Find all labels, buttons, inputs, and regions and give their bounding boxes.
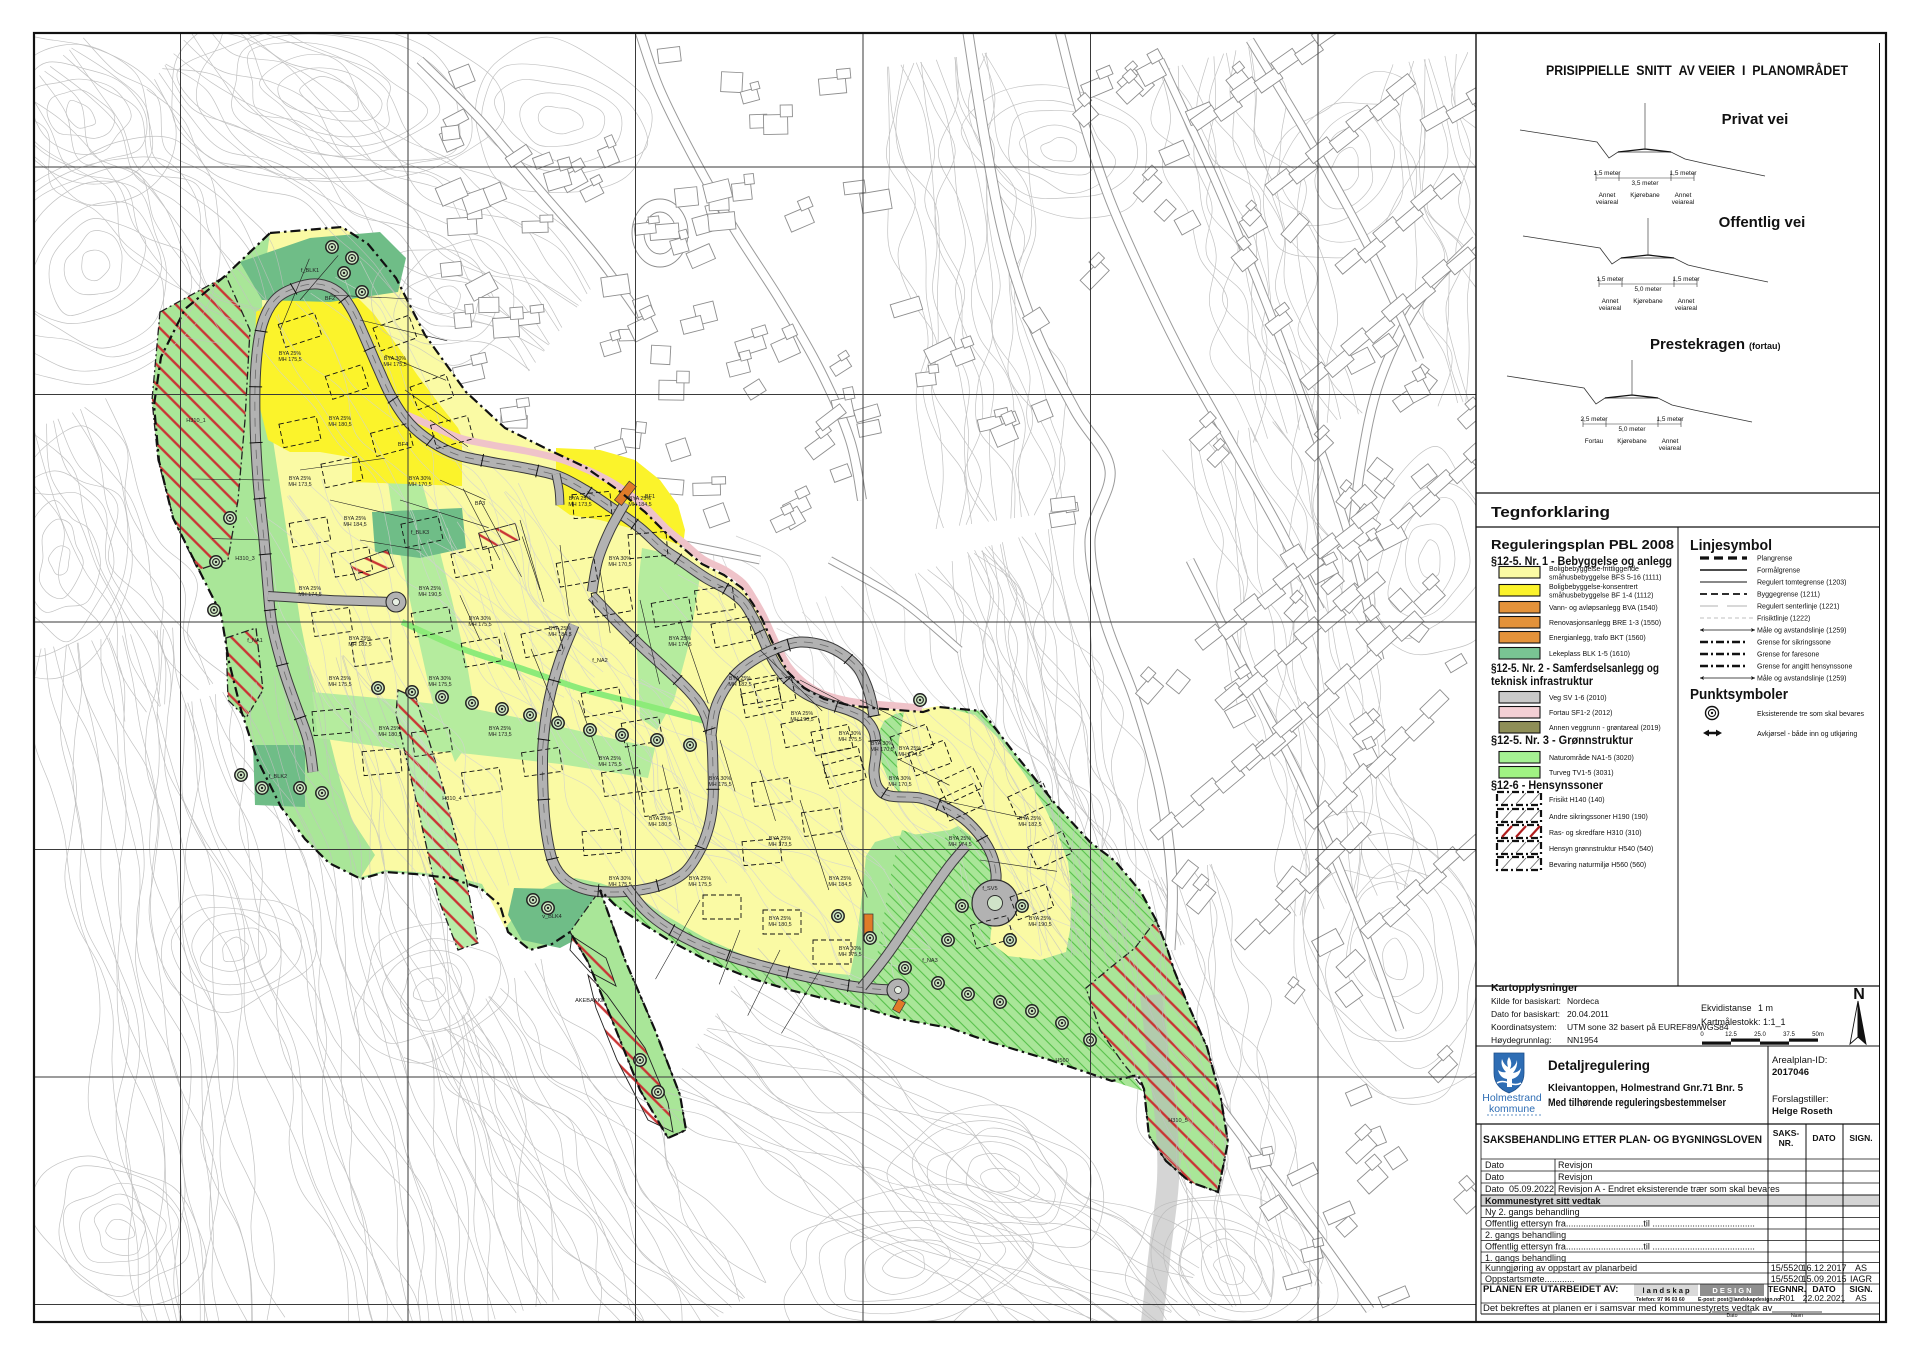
svg-text:BF3: BF3 <box>475 501 485 507</box>
svg-text:§12-5. Nr. 2 - Samferdselsanle: §12-5. Nr. 2 - Samferdselsanlegg og <box>1491 663 1659 675</box>
svg-text:Offentlig ettersyn fra........: Offentlig ettersyn fra..................… <box>1485 1242 1755 1252</box>
svg-text:50m: 50m <box>1812 1032 1824 1038</box>
svg-text:Tegnforklaring: Tegnforklaring <box>1491 504 1610 521</box>
svg-text:MH 170,5: MH 170,5 <box>408 482 431 488</box>
svg-text:Kilde for basiskart:: Kilde for basiskart: <box>1491 996 1561 1006</box>
svg-text:Renovasjonsanlegg BRE 1-3 (155: Renovasjonsanlegg BRE 1-3 (1550) <box>1549 620 1661 627</box>
svg-text:MH 173,5: MH 173,5 <box>768 842 791 848</box>
svg-text:småhusbebyggelse BFS 5-16 (111: småhusbebyggelse BFS 5-16 (1111) <box>1549 574 1661 582</box>
svg-text:Ny 2. gangs behandling: Ny 2. gangs behandling <box>1485 1207 1580 1217</box>
svg-text:f_NA1: f_NA1 <box>247 638 263 644</box>
svg-text:Ekvidistanse: Ekvidistanse <box>1701 1003 1752 1013</box>
svg-text:Kartmålestokk: 1:1_1: Kartmålestokk: 1:1_1 <box>1701 1017 1786 1027</box>
svg-text:Dato: Dato <box>1485 1160 1504 1170</box>
svg-text:veiareal: veiareal <box>1672 199 1694 206</box>
svg-text:Formålgrense: Formålgrense <box>1757 567 1800 575</box>
svg-text:22.02.2021: 22.02.2021 <box>1803 1293 1846 1303</box>
svg-text:kommune: kommune <box>1489 1103 1535 1115</box>
svg-text:MH 175,5: MH 175,5 <box>608 882 631 888</box>
svg-text:l a n d s k a p: l a n d s k a p <box>1642 1286 1690 1295</box>
svg-text:Dato: Dato <box>1485 1172 1504 1182</box>
svg-text:Avkjørsel - både inn og utkjør: Avkjørsel - både inn og utkjøring <box>1757 730 1857 738</box>
svg-text:veiareal: veiareal <box>1596 199 1618 206</box>
svg-text:BF2: BF2 <box>325 296 335 302</box>
svg-text:16.12.2017: 16.12.2017 <box>1801 1263 1846 1273</box>
svg-text:Annet: Annet <box>1678 298 1695 305</box>
svg-text:Dato 05.09.2022: Dato 05.09.2022 <box>1485 1184 1554 1194</box>
svg-text:Annet: Annet <box>1675 192 1692 199</box>
svg-text:MH 180,5: MH 180,5 <box>648 822 671 828</box>
svg-text:Punktsymboler: Punktsymboler <box>1690 687 1788 703</box>
svg-text:f_BLK3: f_BLK3 <box>411 530 429 536</box>
svg-text:v_BLK4: v_BLK4 <box>542 914 562 920</box>
svg-text:Kjørebane: Kjørebane <box>1630 192 1660 199</box>
svg-text:2. gangs behandling: 2. gangs behandling <box>1485 1230 1566 1240</box>
svg-text:Kunngjøring av oppstart av pla: Kunngjøring av oppstart av planarbeid <box>1485 1263 1637 1273</box>
svg-text:Annet: Annet <box>1662 438 1679 445</box>
svg-text:MH 184,5: MH 184,5 <box>343 522 366 528</box>
svg-text:SAKSBEHANDLING ETTER PLAN- OG: SAKSBEHANDLING ETTER PLAN- OG BYGNINGSLO… <box>1483 1134 1762 1146</box>
svg-text:SAKS-: SAKS- <box>1773 1128 1800 1138</box>
svg-text:MH 174,5: MH 174,5 <box>898 752 921 758</box>
svg-text:MH 175,5: MH 175,5 <box>838 952 861 958</box>
svg-text:MH 190,5: MH 190,5 <box>418 592 441 598</box>
svg-text:Revisjon: Revisjon <box>1558 1172 1593 1182</box>
svg-text:MH 174,5: MH 174,5 <box>668 642 691 648</box>
svg-text:Frisiktlinje (1222): Frisiktlinje (1222) <box>1757 616 1810 623</box>
svg-text:H310_1: H310_1 <box>186 418 206 424</box>
svg-text:1,5 meter: 1,5 meter <box>1594 170 1622 177</box>
svg-text:MH 173,5: MH 173,5 <box>488 732 511 738</box>
svg-text:MH 174,5: MH 174,5 <box>298 592 321 598</box>
svg-text:MH 190,5: MH 190,5 <box>790 717 813 723</box>
svg-text:småhusbebyggelse BF 1-4 (1112): småhusbebyggelse BF 1-4 (1112) <box>1549 592 1653 600</box>
svg-text:MH 175,5: MH 175,5 <box>838 737 861 743</box>
svg-text:D E S I G N: D E S I G N <box>1712 1286 1751 1295</box>
svg-text:2017046: 2017046 <box>1772 1067 1809 1078</box>
svg-text:Arealplan-ID:: Arealplan-ID: <box>1772 1055 1827 1066</box>
svg-text:Frisikt H140 (140): Frisikt H140 (140) <box>1549 797 1605 804</box>
svg-text:MH 190,5: MH 190,5 <box>1028 922 1051 928</box>
svg-text:Eksisterende tre som skal beva: Eksisterende tre som skal bevares <box>1757 711 1864 718</box>
svg-text:SIGN.: SIGN. <box>1849 1133 1872 1143</box>
svg-text:R01: R01 <box>1779 1293 1795 1303</box>
svg-text:Kjørebane: Kjørebane <box>1617 438 1647 445</box>
svg-text:MH 175,5: MH 175,5 <box>598 762 621 768</box>
svg-text:5,0 meter: 5,0 meter <box>1619 426 1647 433</box>
svg-text:AS: AS <box>1855 1263 1867 1273</box>
svg-text:veiareal: veiareal <box>1599 305 1621 312</box>
svg-text:AKEBAKKE: AKEBAKKE <box>575 998 605 1004</box>
svg-text:AS: AS <box>1855 1293 1867 1303</box>
svg-text:PLANEN ER UTARBEIDET AV:: PLANEN ER UTARBEIDET AV: <box>1483 1284 1618 1295</box>
svg-text:Helge Roseth: Helge Roseth <box>1772 1106 1833 1117</box>
svg-text:MH 175,5: MH 175,5 <box>383 362 406 368</box>
svg-text:veiareal: veiareal <box>1675 305 1697 312</box>
svg-text:MH 175,5: MH 175,5 <box>468 622 491 628</box>
svg-text:2,5 meter: 2,5 meter <box>1581 416 1609 423</box>
svg-text:MH 175,5: MH 175,5 <box>328 682 351 688</box>
svg-text:Privat vei: Privat vei <box>1722 111 1789 128</box>
svg-text:Detaljregulering: Detaljregulering <box>1548 1058 1650 1073</box>
svg-text:veiareal: veiareal <box>1659 445 1681 452</box>
svg-text:Forslagstiller:: Forslagstiller: <box>1772 1094 1829 1105</box>
svg-text:Veg SV 1-6 (2010): Veg SV 1-6 (2010) <box>1549 695 1607 702</box>
svg-text:Ras- og skredfare H310 (310): Ras- og skredfare H310 (310) <box>1549 830 1642 837</box>
svg-text:Prestekragen: Prestekragen <box>1650 336 1745 353</box>
svg-text:MH 182,5: MH 182,5 <box>728 682 751 688</box>
svg-text:Kommunestyret sitt vedtak: Kommunestyret sitt vedtak <box>1485 1196 1602 1206</box>
svg-text:Grense for faresone: Grense for faresone <box>1757 652 1819 659</box>
svg-text:Vann- og avløpsanlegg BVA (154: Vann- og avløpsanlegg BVA (1540) <box>1549 605 1658 612</box>
svg-text:Annet: Annet <box>1599 192 1616 199</box>
svg-text:Lekeplass BLK 1-5 (1610): Lekeplass BLK 1-5 (1610) <box>1549 651 1630 658</box>
svg-text:25.0: 25.0 <box>1754 1032 1766 1038</box>
svg-text:NN1954: NN1954 <box>1567 1035 1598 1045</box>
svg-text:(fortau): (fortau) <box>1749 341 1781 351</box>
svg-text:MH 170,5: MH 170,5 <box>870 747 893 753</box>
svg-text:f_NA3: f_NA3 <box>922 958 938 964</box>
svg-text:MH 184,5: MH 184,5 <box>828 882 851 888</box>
svg-text:15/5520: 15/5520 <box>1771 1263 1804 1273</box>
svg-text:Energianlegg, trafo BKT (1560): Energianlegg, trafo BKT (1560) <box>1549 635 1646 642</box>
svg-text:Annet: Annet <box>1602 298 1619 305</box>
svg-text:MH 170,5: MH 170,5 <box>888 782 911 788</box>
svg-text:Hensyn grønnstruktur H540 (540: Hensyn grønnstruktur H540 (540) <box>1549 846 1653 853</box>
svg-text:1,5 meter: 1,5 meter <box>1673 276 1701 283</box>
svg-text:Nordeca: Nordeca <box>1567 996 1599 1006</box>
svg-text:Bevaring naturmiljø H560 (560): Bevaring naturmiljø H560 (560) <box>1549 862 1646 869</box>
svg-text:Offentlig ettersyn fra........: Offentlig ettersyn fra..................… <box>1485 1219 1755 1229</box>
svg-text:MH 175,5: MH 175,5 <box>428 682 451 688</box>
svg-text:Boligbebyggelse-frittliggende: Boligbebyggelse-frittliggende <box>1549 566 1639 573</box>
svg-text:MH 174,5: MH 174,5 <box>948 842 971 848</box>
svg-text:Kartopplysninger: Kartopplysninger <box>1491 982 1578 994</box>
svg-text:§12-5. Nr. 3 - Grønnstruktur: §12-5. Nr. 3 - Grønnstruktur <box>1491 735 1633 747</box>
svg-text:Fortau SF1-2 (2012): Fortau SF1-2 (2012) <box>1549 710 1612 717</box>
svg-text:1,5 meter: 1,5 meter <box>1597 276 1625 283</box>
svg-text:1. gangs behandling: 1. gangs behandling <box>1485 1253 1566 1263</box>
svg-text:Høydegrunnlag:: Høydegrunnlag: <box>1491 1035 1551 1045</box>
svg-text:Naturområde NA1-5 (3020): Naturområde NA1-5 (3020) <box>1549 754 1634 762</box>
svg-text:1,5 meter: 1,5 meter <box>1670 170 1698 177</box>
svg-text:MH 180,5: MH 180,5 <box>768 922 791 928</box>
svg-text:NR.: NR. <box>1779 1138 1794 1148</box>
svg-text:Revisjon: Revisjon <box>1558 1160 1593 1170</box>
svg-text:§12-6 - Hensynssoner: §12-6 - Hensynssoner <box>1491 780 1603 792</box>
svg-text:Grense for angitt hensynssone: Grense for angitt hensynssone <box>1757 664 1852 671</box>
svg-text:Måle og avstandslinje (1259): Måle og avstandslinje (1259) <box>1757 627 1847 635</box>
svg-text:Linjesymbol: Linjesymbol <box>1690 538 1772 554</box>
svg-text:MH 184,5: MH 184,5 <box>548 632 571 638</box>
svg-text:Regulert senterlinje (1221): Regulert senterlinje (1221) <box>1757 604 1840 611</box>
svg-text:Fortau: Fortau <box>1585 438 1604 445</box>
svg-text:MH 182,5: MH 182,5 <box>348 642 371 648</box>
svg-text:3,5 meter: 3,5 meter <box>1632 180 1660 187</box>
svg-text:Boligbebyggelse-konsentrert: Boligbebyggelse-konsentrert <box>1549 584 1638 591</box>
svg-text:MH 182,5: MH 182,5 <box>1018 822 1041 828</box>
svg-text:Annen veggrunn - grøntareal (2: Annen veggrunn - grøntareal (2019) <box>1549 725 1661 732</box>
svg-text:MH 180,5: MH 180,5 <box>328 422 351 428</box>
svg-text:MH 184,5: MH 184,5 <box>628 502 651 508</box>
svg-text:Byggegrense (1211): Byggegrense (1211) <box>1757 592 1820 599</box>
svg-text:12.5: 12.5 <box>1725 1032 1737 1038</box>
svg-text:H310_3: H310_3 <box>235 556 255 562</box>
svg-text:N: N <box>1853 986 1865 1003</box>
svg-text:PRISIPPIELLE SNITT AV VEIER: PRISIPPIELLE SNITT AV VEIER I PLANOMRÅDE… <box>1546 63 1849 78</box>
svg-text:MH 175,5: MH 175,5 <box>688 882 711 888</box>
svg-text:5,0 meter: 5,0 meter <box>1635 286 1663 293</box>
svg-text:MH 173,5: MH 173,5 <box>288 482 311 488</box>
svg-text:Med tilhørende reguleringsbest: Med tilhørende reguleringsbestemmelser <box>1548 1097 1727 1109</box>
svg-text:Oppstartsmøte............: Oppstartsmøte............ <box>1485 1274 1575 1284</box>
svg-text:MH 170,5: MH 170,5 <box>608 562 631 568</box>
svg-text:f_BLK1: f_BLK1 <box>301 268 319 274</box>
svg-text:37.5: 37.5 <box>1783 1032 1795 1038</box>
svg-text:BF4: BF4 <box>398 442 408 448</box>
svg-text:f_NA2: f_NA2 <box>592 658 608 664</box>
svg-text:Kjørebane: Kjørebane <box>1633 298 1663 305</box>
svg-text:MH 175,5: MH 175,5 <box>708 782 731 788</box>
svg-text:MH 173,5: MH 173,5 <box>568 502 591 508</box>
svg-text:MH 180,5: MH 180,5 <box>378 732 401 738</box>
svg-text:15.09.2015: 15.09.2015 <box>1801 1274 1846 1284</box>
svg-text:Koordinatsystem:: Koordinatsystem: <box>1491 1022 1557 1032</box>
svg-text:1 m: 1 m <box>1758 1003 1773 1013</box>
svg-text:Reguleringsplan PBL 2008: Reguleringsplan PBL 2008 <box>1491 537 1674 552</box>
svg-text:Måle og avstandslinje (1259): Måle og avstandslinje (1259) <box>1757 675 1847 683</box>
svg-text:f_BLK2: f_BLK2 <box>269 774 287 780</box>
svg-text:BF1: BF1 <box>645 494 655 500</box>
svg-text:Andre sikringssoner H190 (190): Andre sikringssoner H190 (190) <box>1549 814 1648 821</box>
svg-text:MH 175,5: MH 175,5 <box>278 357 301 363</box>
svg-text:f_SV5: f_SV5 <box>982 886 997 892</box>
svg-text:Kleivantoppen, Holmestrand Gnr: Kleivantoppen, Holmestrand Gnr.71 Bnr. 5 <box>1548 1082 1743 1094</box>
svg-text:H310_5: H310_5 <box>1168 1118 1188 1124</box>
svg-text:H560: H560 <box>1055 1058 1068 1064</box>
svg-text:Plangrense: Plangrense <box>1757 556 1793 563</box>
svg-text:Regulert tomtegrense (1203): Regulert tomtegrense (1203) <box>1757 580 1847 587</box>
svg-text:Turveg TV1-5 (3031): Turveg TV1-5 (3031) <box>1549 770 1614 777</box>
svg-text:20.04.2011: 20.04.2011 <box>1567 1009 1609 1019</box>
svg-text:teknisk infrastruktur: teknisk infrastruktur <box>1491 676 1593 688</box>
svg-text:IAGR: IAGR <box>1850 1274 1873 1284</box>
svg-text:Revisjon A - Endret eksisteren: Revisjon A - Endret eksisterende trær so… <box>1558 1184 1780 1194</box>
svg-text:H310_4: H310_4 <box>442 796 462 802</box>
svg-text:15/5520: 15/5520 <box>1771 1274 1804 1284</box>
svg-text:Offentlig vei: Offentlig vei <box>1719 214 1806 231</box>
svg-text:Grense for sikringssone: Grense for sikringssone <box>1757 640 1831 647</box>
svg-text:Dato for basiskart:: Dato for basiskart: <box>1491 1009 1560 1019</box>
svg-text:1,5 meter: 1,5 meter <box>1657 416 1685 423</box>
svg-text:DATO: DATO <box>1812 1133 1836 1143</box>
